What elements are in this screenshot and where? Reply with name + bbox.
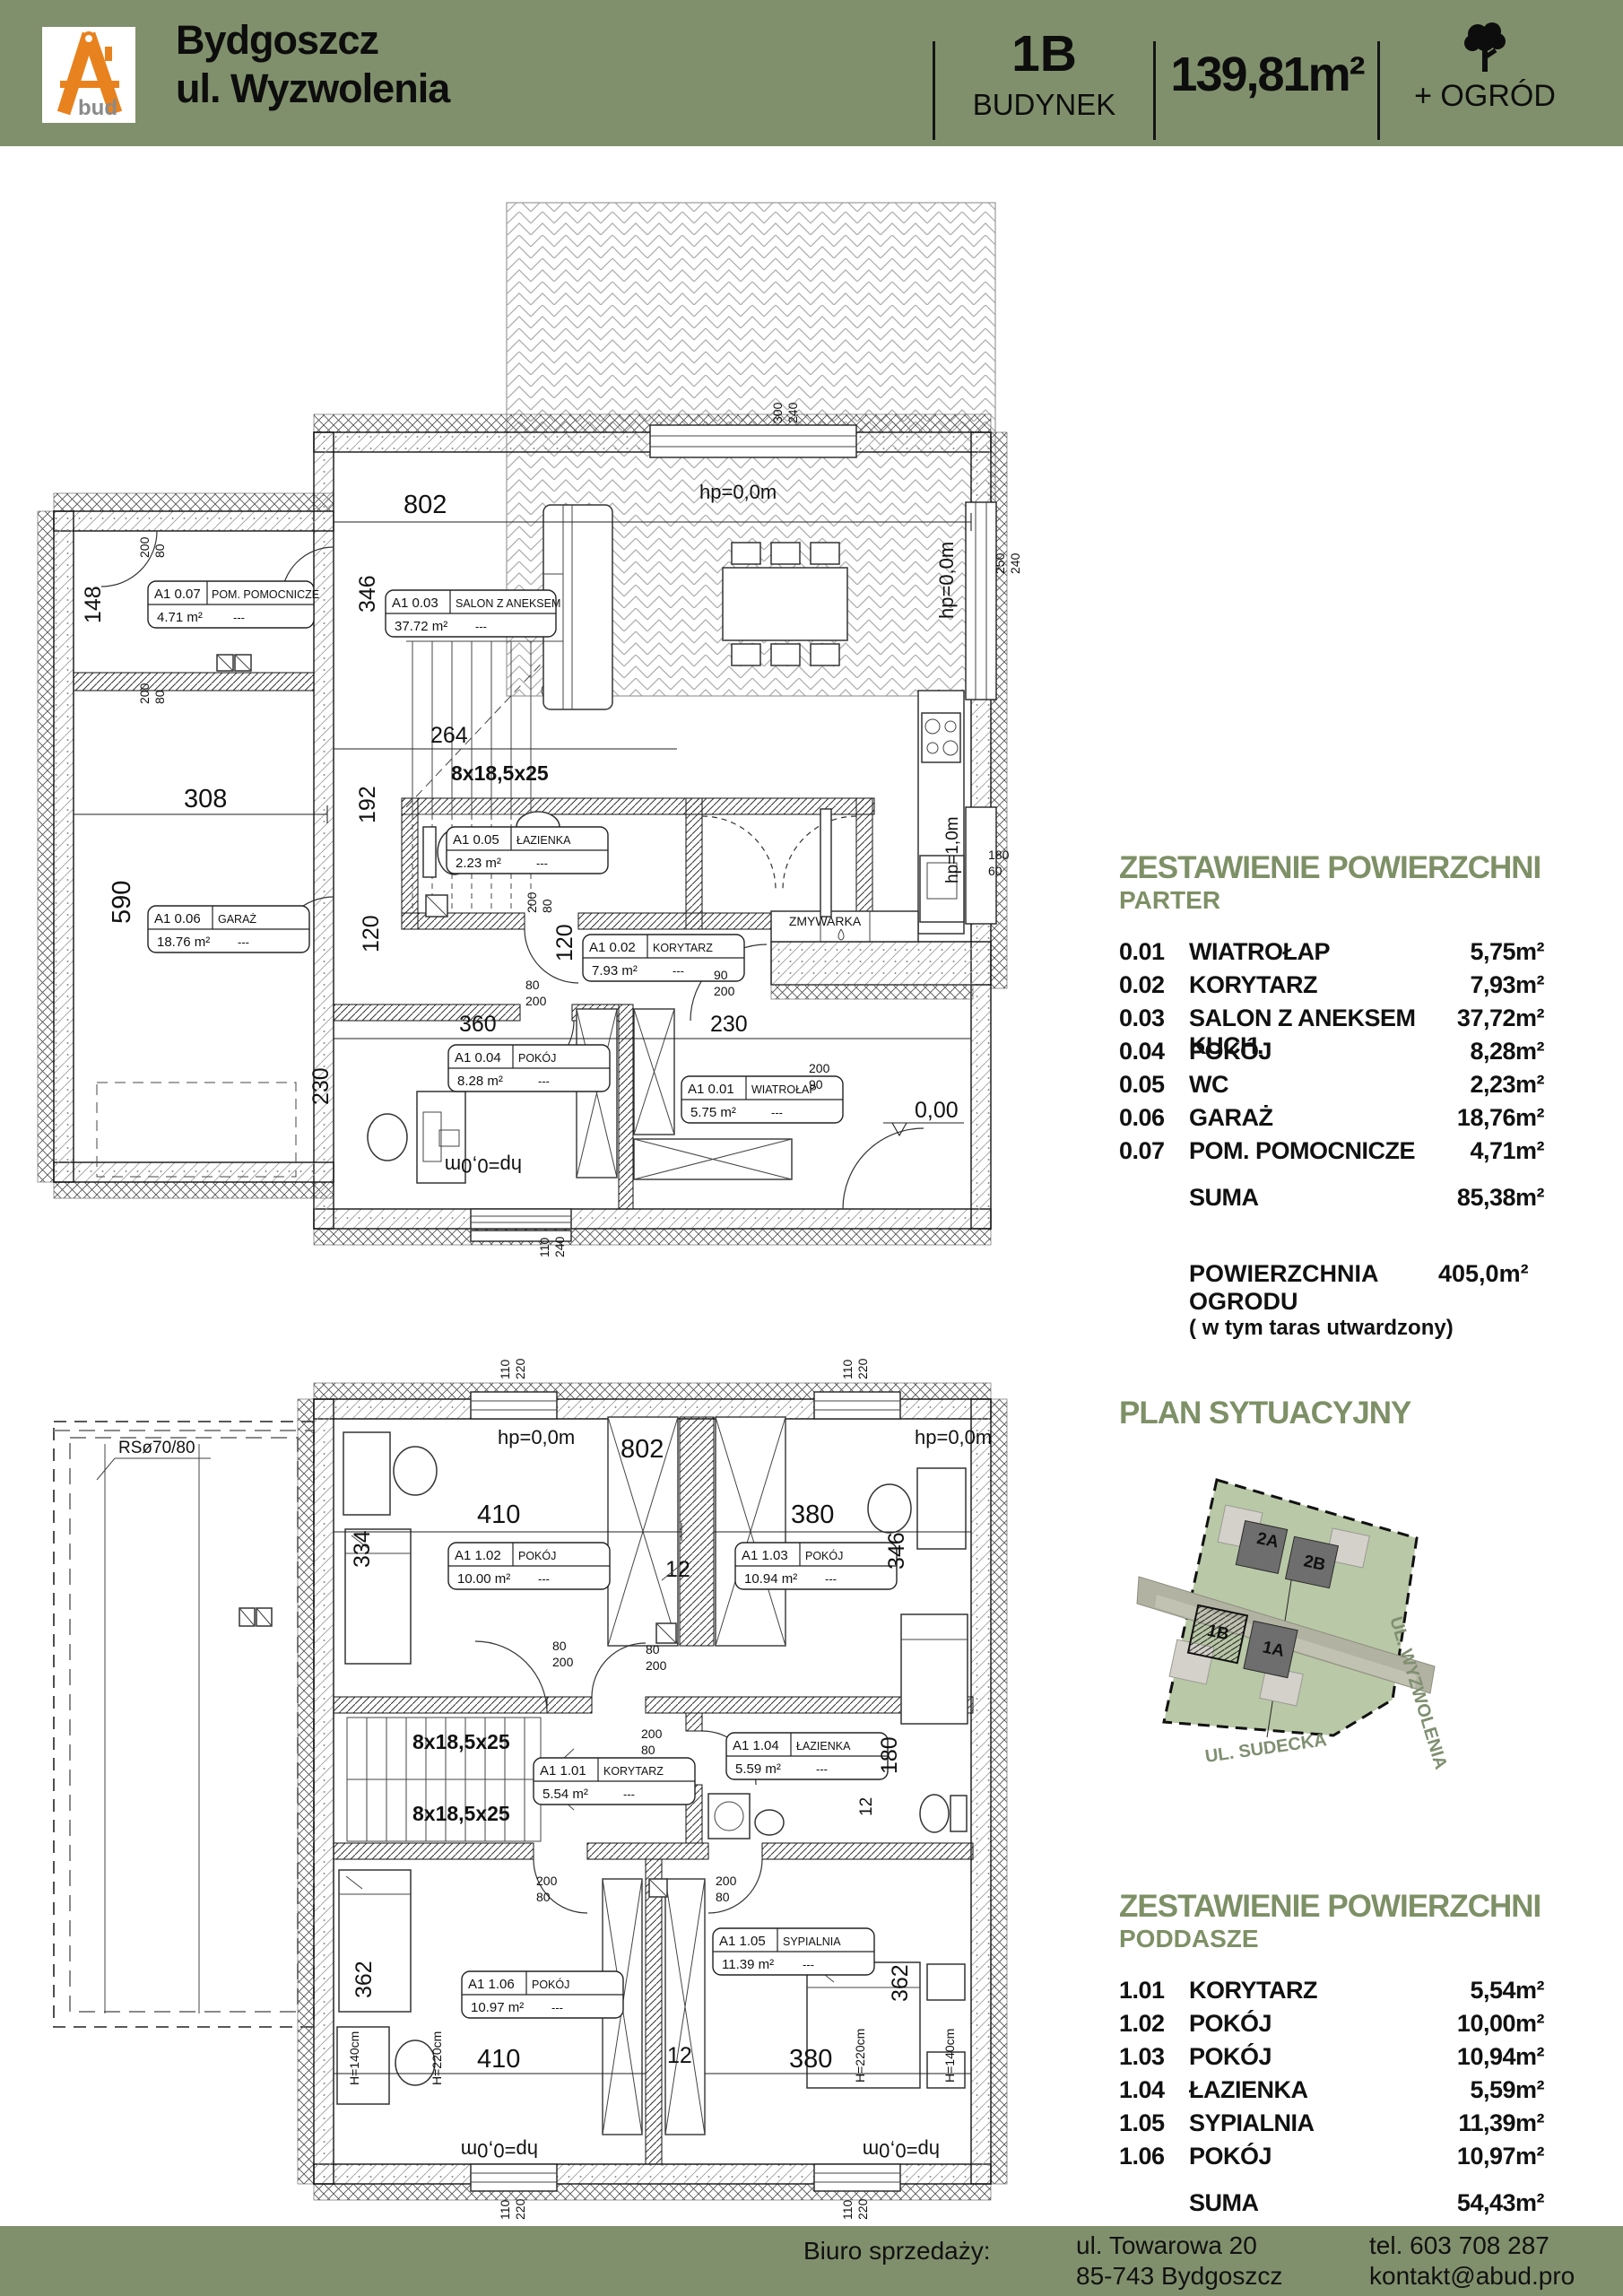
floorplan-parter: ZMYWARKA [18,188,1022,1300]
svg-text:---: --- [771,1106,783,1119]
svg-text:80: 80 [716,1890,730,1904]
svg-text:H=140cm: H=140cm [942,2029,957,2083]
header-divider [1153,41,1156,140]
building-2a: 2A [1236,1521,1287,1574]
footer-address-line2: 85-743 Bydgoszcz [1076,2262,1282,2291]
svg-text:---: --- [551,2001,563,2014]
svg-text:POKÓJ: POKÓJ [532,1978,569,1991]
svg-text:200: 200 [137,536,152,558]
table-row: 1.02POKÓJ10,00m² [1119,2010,1544,2043]
table-poddasze: ZESTAWIENIE POWIERZCHNI PODDASZE 1.01KOR… [1119,1889,1544,2222]
svg-text:200: 200 [809,1061,830,1075]
abud-logo: bud [42,27,135,123]
room-label-pom: A1 0.07 POM. POMOCNICZE 4.71 m² --- [148,581,319,628]
svg-text:362: 362 [352,1961,377,1998]
level-marker: 0,00 [883,1098,964,1135]
footer-address-line1: ul. Towarowa 20 [1076,2231,1257,2260]
svg-text:8.28 m²: 8.28 m² [457,1074,503,1089]
svg-text:---: --- [238,935,249,949]
svg-text:A1 0.02: A1 0.02 [589,940,636,955]
svg-text:110: 110 [498,2199,512,2220]
svg-text:120: 120 [552,924,577,961]
table-row: 1.06POKÓJ10,97m² [1119,2143,1544,2176]
svg-text:2.23 m²: 2.23 m² [456,856,501,871]
room-label-103: A1 1.03 POKÓJ 10.94 m² --- [735,1543,897,1589]
table-row: 1.05SYPIALNIA11,39m² [1119,2109,1544,2143]
svg-text:80: 80 [152,690,167,704]
svg-text:230: 230 [710,1012,748,1037]
svg-text:346: 346 [884,1532,909,1570]
table-row: 0.07POM. POMOCNICZE4,71m² [1119,1137,1544,1170]
svg-text:A1 1.02: A1 1.02 [455,1548,501,1563]
svg-text:H=140cm: H=140cm [347,2031,361,2085]
svg-text:192: 192 [355,786,380,823]
table-poddasze-title: ZESTAWIENIE POWIERZCHNI [1119,1889,1544,1925]
room-label-lazienka: A1 0.05 ŁAZIENKA 2.23 m² --- [447,827,608,874]
svg-text:240: 240 [785,402,800,423]
table-row: 1.04ŁAZIENKA5,59m² [1119,2076,1544,2109]
footer-office-label: Biuro sprzedaży: [803,2237,991,2266]
svg-text:80: 80 [552,1639,567,1653]
room-label-garaz: A1 0.06 GARAŻ 18.76 m² --- [148,906,309,952]
svg-text:590: 590 [108,881,136,924]
total-area: 139,81m² [1160,47,1374,102]
svg-text:180: 180 [877,1736,902,1774]
footer-bar: Biuro sprzedaży: ul. Towarowa 20 85-743 … [0,2226,1623,2296]
svg-text:200: 200 [641,1726,663,1741]
svg-text:WIATROŁAP: WIATROŁAP [751,1083,817,1096]
svg-text:12: 12 [667,2043,692,2068]
table-row: 0.03SALON Z ANEKSEM KUCH.37,72m² [1119,1004,1544,1038]
brand-street: ul. Wyzwolenia [176,65,449,113]
svg-text:A1 0.07: A1 0.07 [154,587,201,602]
svg-text:A1 1.05: A1 1.05 [719,1934,766,1949]
svg-text:GARAŻ: GARAŻ [218,913,256,926]
garden-area-block: POWIERZCHNIA OGRODU405,0m² ( w tym taras… [1119,1260,1544,1341]
svg-text:---: --- [673,964,684,978]
svg-text:200: 200 [714,984,735,998]
table-row: 0.04POKÓJ8,28m² [1119,1038,1544,1071]
svg-text:POM. POMOCNICZE: POM. POMOCNICZE [212,588,319,601]
room-label-105: A1 1.05 SYPIALNIA 11.39 m² --- [713,1928,874,1975]
room-label-101: A1 1.01 KORYTARZ 5.54 m² --- [534,1758,695,1805]
svg-text:230: 230 [308,1067,334,1105]
svg-text:5.75 m²: 5.75 m² [690,1105,736,1120]
header-divider [933,41,935,140]
table-row: 1.03POKÓJ10,94m² [1119,2043,1544,2076]
table-suma-row: SUMA54,43m² [1119,2189,1544,2222]
svg-text:362: 362 [888,1964,913,2002]
svg-text:0,00: 0,00 [915,1098,959,1123]
svg-text:---: --- [536,857,548,870]
header-divider [1377,41,1380,140]
svg-text:A1 0.06: A1 0.06 [154,911,201,926]
svg-text:180: 180 [988,848,1010,862]
footer-email: kontakt@abud.pro [1369,2262,1575,2291]
svg-text:hp=0,0m: hp=0,0m [461,2139,538,2161]
abud-logo-icon: bud [42,27,135,123]
furniture-103 [868,1468,968,1724]
svg-text:110: 110 [537,1237,551,1257]
svg-text:220: 220 [513,2198,527,2220]
floorplan-poddasze: RSø70/80 [18,1345,1022,2224]
svg-text:346: 346 [355,575,380,613]
brand-city: Bydgoszcz [176,16,449,65]
svg-text:37.72 m²: 37.72 m² [395,619,447,634]
svg-text:---: --- [538,1074,550,1088]
room-label-106: A1 1.06 POKÓJ 10.97 m² --- [462,1971,623,2018]
svg-text:264: 264 [430,723,468,748]
svg-text:334: 334 [350,1530,375,1568]
svg-text:8x18,5x25: 8x18,5x25 [412,1730,510,1753]
svg-text:110: 110 [498,1359,512,1379]
svg-text:H=220cm: H=220cm [853,2029,867,2083]
svg-text:410: 410 [477,2045,520,2074]
svg-text:5.54 m²: 5.54 m² [542,1787,588,1802]
svg-text:10.94 m²: 10.94 m² [744,1571,797,1587]
street-sudecka: UL. SUDECKA [1204,1730,1328,1767]
svg-text:A1 1.03: A1 1.03 [742,1548,788,1563]
svg-text:KORYTARZ: KORYTARZ [603,1765,664,1778]
svg-text:SALON Z ANEKSEM: SALON Z ANEKSEM [456,597,560,610]
svg-text:200: 200 [536,1874,558,1888]
street-wyzwolenia: UL. WYZWOLENIA [1385,1614,1451,1771]
svg-text:---: --- [623,1787,635,1801]
svg-text:5.59 m²: 5.59 m² [735,1761,781,1777]
svg-text:12: 12 [857,1797,876,1816]
svg-text:A1 1.04: A1 1.04 [733,1738,779,1753]
table-row: 0.01WIATROŁAP5,75m² [1119,938,1544,971]
footer-phone: tel. 603 708 287 [1369,2231,1549,2260]
svg-text:60: 60 [988,864,1002,878]
table-parter: ZESTAWIENIE POWIERZCHNI PARTER 0.01WIATR… [1119,850,1544,1341]
svg-text:380: 380 [791,1500,834,1529]
building-2b: 2B [1286,1536,1339,1587]
svg-text:hp=0,0m: hp=0,0m [445,1154,522,1177]
svg-text:80: 80 [646,1642,660,1657]
svg-text:8x18,5x25: 8x18,5x25 [451,761,549,785]
svg-text:A1 1.01: A1 1.01 [540,1763,586,1779]
svg-text:hp=0,0m: hp=0,0m [699,481,777,503]
svg-text:RSø70/80: RSø70/80 [118,1439,195,1457]
garden-label: + OGRÓD [1386,79,1584,114]
svg-text:80: 80 [536,1890,551,1904]
svg-text:200: 200 [646,1658,667,1673]
unit-id: 1B [943,27,1145,81]
garden-block: + OGRÓD [1386,20,1584,114]
svg-text:200: 200 [525,891,539,913]
unit-label: BUDYNEK [943,88,1145,122]
svg-text:hp=1,0m: hp=1,0m [943,817,962,883]
svg-text:7.93 m²: 7.93 m² [592,963,638,978]
svg-text:308: 308 [184,785,227,813]
svg-text:A1 0.04: A1 0.04 [455,1050,501,1065]
svg-text:240: 240 [1008,552,1022,574]
svg-text:200: 200 [137,683,152,704]
svg-text:250: 250 [993,552,1007,574]
svg-text:11.39 m²: 11.39 m² [722,1957,774,1972]
svg-text:90: 90 [809,1077,823,1091]
svg-text:120: 120 [359,915,384,952]
svg-text:8x18,5x25: 8x18,5x25 [412,1802,510,1825]
svg-text:802: 802 [404,491,447,519]
svg-text:---: --- [233,611,245,624]
svg-text:4.71 m²: 4.71 m² [157,610,203,625]
svg-text:80: 80 [525,978,540,992]
svg-text:148: 148 [81,586,106,623]
svg-text:802: 802 [621,1435,664,1464]
svg-text:80: 80 [152,544,167,558]
svg-text:A1 0.03: A1 0.03 [392,596,438,611]
svg-text:380: 380 [789,2045,832,2074]
svg-text:KORYTARZ: KORYTARZ [653,942,713,954]
svg-text:---: --- [475,620,487,633]
siteplan-title: PLAN SYTUACYJNY [1119,1396,1410,1431]
svg-text:200: 200 [552,1655,574,1669]
table-poddasze-subtitle: PODDASZE [1119,1925,1544,1953]
svg-text:A1 0.01: A1 0.01 [688,1082,734,1097]
svg-text:---: --- [803,1958,814,1971]
svg-text:80: 80 [641,1743,655,1757]
svg-text:POKÓJ: POKÓJ [518,1549,556,1562]
brand-address: Bydgoszcz ul. Wyzwolenia [176,16,449,113]
svg-text:A1 1.06: A1 1.06 [468,1977,515,1992]
table-row: 0.05WC2,23m² [1119,1071,1544,1104]
svg-text:hp=0,0m: hp=0,0m [915,1426,992,1448]
page: bud Bydgoszcz ul. Wyzwolenia 1B BUDYNEK … [0,0,1623,2296]
room-label-pokoj: A1 0.04 POKÓJ 8.28 m² --- [448,1045,610,1091]
svg-text:200: 200 [716,1874,737,1888]
svg-text:220: 220 [855,1358,870,1379]
garage-roof-outline: RSø70/80 [54,1422,314,2027]
bathroom-poddasze [708,1794,967,1839]
svg-text:80: 80 [540,899,554,913]
svg-text:hp=0,0m: hp=0,0m [863,2139,940,2161]
svg-text:ŁAZIENKA: ŁAZIENKA [796,1740,851,1752]
svg-text:410: 410 [477,1500,520,1529]
table-row: 0.06GARAŻ18,76m² [1119,1104,1544,1137]
svg-text:A1 0.05: A1 0.05 [453,832,499,848]
table-parter-subtitle: PARTER [1119,886,1544,915]
svg-text:SYPIALNIA: SYPIALNIA [783,1935,841,1948]
svg-text:ŁAZIENKA: ŁAZIENKA [516,834,571,847]
svg-text:POKÓJ: POKÓJ [805,1549,843,1562]
svg-text:hp=0,0m: hp=0,0m [935,542,958,619]
svg-text:POKÓJ: POKÓJ [518,1051,556,1065]
svg-text:90: 90 [714,968,728,982]
svg-text:H=220cm: H=220cm [430,2031,444,2085]
table-parter-title: ZESTAWIENIE POWIERZCHNI [1119,850,1544,886]
svg-text:---: --- [816,1762,828,1776]
room-label-salon: A1 0.03 SALON Z ANEKSEM 37.72 m² --- [386,590,560,637]
svg-text:110: 110 [840,2199,855,2220]
svg-text:220: 220 [855,2198,870,2220]
svg-text:360: 360 [459,1012,497,1037]
svg-text:10.97 m²: 10.97 m² [471,2000,524,2015]
logo-text: bud [78,96,117,120]
siteplan: 2A 2B 1B 1A UL. WYZWOLENIA UL. SUDECKA [1121,1453,1623,1848]
svg-text:10.00 m²: 10.00 m² [457,1571,510,1587]
svg-text:220: 220 [513,1358,527,1379]
svg-text:240: 240 [552,1236,567,1257]
table-row: 1.01KORYTARZ5,54m² [1119,1977,1544,2010]
header-bar: bud Bydgoszcz ul. Wyzwolenia 1B BUDYNEK … [0,0,1623,146]
unit-block: 1B BUDYNEK [943,27,1145,122]
tree-icon [1456,20,1514,75]
svg-text:200: 200 [525,994,547,1008]
svg-text:hp=0,0m: hp=0,0m [498,1426,575,1448]
room-label-104: A1 1.04 ŁAZIENKA 5.59 m² --- [726,1733,888,1779]
svg-text:---: --- [538,1572,550,1586]
svg-text:12: 12 [665,1557,690,1582]
svg-text:---: --- [825,1572,837,1586]
table-suma-row: SUMA85,38m² [1119,1184,1544,1217]
svg-text:300: 300 [770,402,785,423]
building-1b-highlighted: 1B [1188,1605,1247,1663]
room-label-102: A1 1.02 POKÓJ 10.00 m² --- [448,1543,610,1589]
svg-text:110: 110 [840,1359,855,1379]
table-row: 0.02KORYTARZ7,93m² [1119,971,1544,1004]
svg-text:18.76 m²: 18.76 m² [157,935,210,950]
building-1a: 1A [1244,1621,1298,1677]
